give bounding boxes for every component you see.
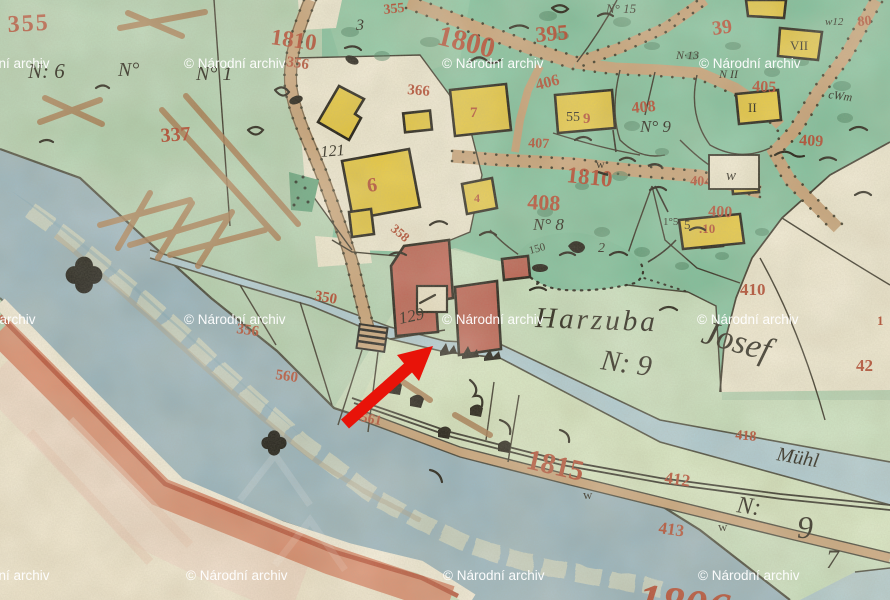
svg-text:© Národní archiv: © Národní archiv [699,56,801,71]
svg-text:© Národní archiv: © Národní archiv [443,568,545,583]
svg-text:© Národní archiv: © Národní archiv [184,312,286,327]
svg-text:© Národní archiv: © Národní archiv [442,312,544,327]
svg-text:© Národní archiv: © Národní archiv [186,568,288,583]
svg-text:© Národní archiv: © Národní archiv [0,568,50,583]
svg-text:© Národní archiv: © Národní archiv [698,568,800,583]
svg-text:© Národní archiv: © Národní archiv [697,312,799,327]
svg-text:© Národní archiv: © Národní archiv [0,56,50,71]
svg-text:© Národní archiv: © Národní archiv [0,312,36,327]
svg-text:© Národní archiv: © Národní archiv [184,56,286,71]
svg-text:© Národní archiv: © Národní archiv [442,56,544,71]
